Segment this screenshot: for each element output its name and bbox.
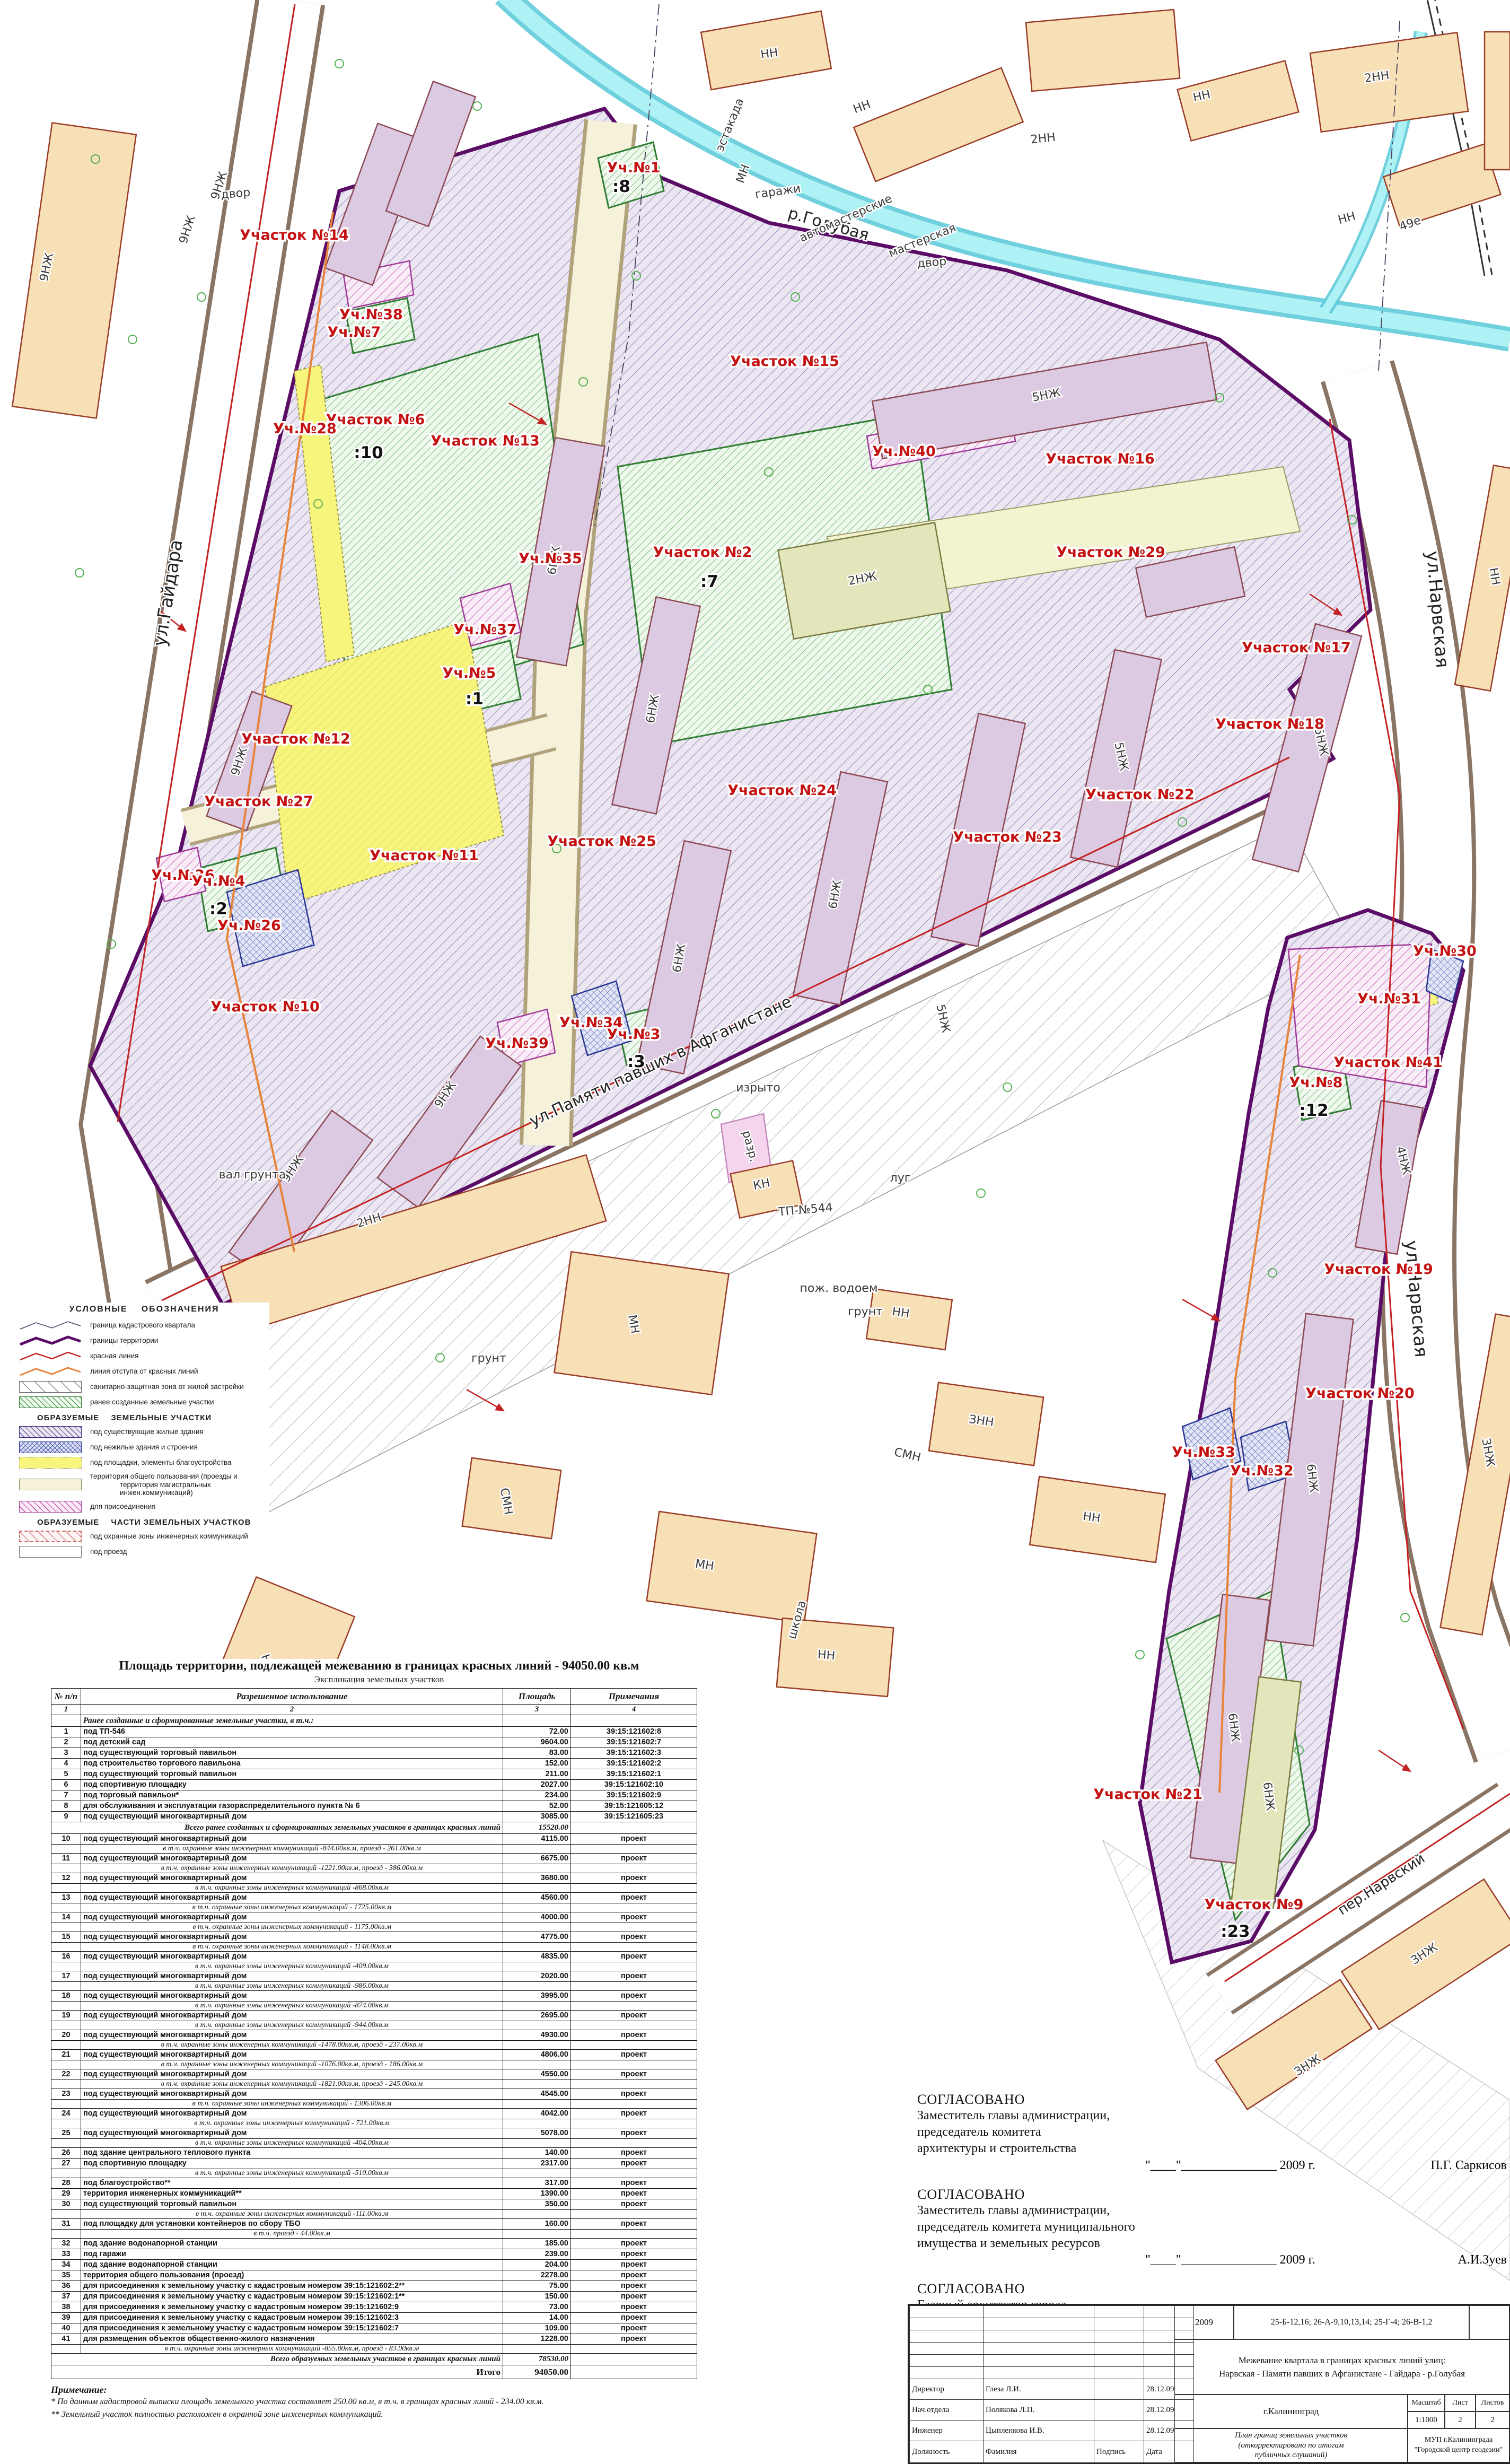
legend-item: территория общего пользования (проезды и… xyxy=(19,1472,269,1497)
table-row: 5под существующий торговый павильон211.0… xyxy=(51,1769,697,1780)
table-header-row: № п/пРазрешенное использованиеПлощадьПри… xyxy=(51,1689,697,1705)
table-row: 27под спортивную площадку2317.00проект xyxy=(51,2159,697,2169)
legend-item-label: ранее созданные земельные участки xyxy=(90,1398,214,1406)
table-row: 30под существующий торговый павильон350.… xyxy=(51,2199,697,2210)
document-name: План границ земельных участков (откоррек… xyxy=(1174,2428,1408,2462)
building-label: НН xyxy=(891,1305,910,1321)
legend-swatch xyxy=(19,1531,82,1542)
legend-title: УСЛОВНЫЕОБОЗНАЧЕНИЯ xyxy=(19,1305,269,1314)
cadastral-ref-label: :7 xyxy=(700,572,718,591)
table-row: 19под существующий многоквартирный дом26… xyxy=(51,2011,697,2021)
approval-name: А.И.Зуев xyxy=(1458,2253,1507,2267)
table-subrow: в т.ч. охранные зоны инженерных коммуник… xyxy=(51,1962,697,1971)
building-label: изрыто xyxy=(736,1081,780,1095)
staff-row: Нач.отделаПолякова Л.П.28.12.09 xyxy=(910,2400,1194,2421)
parcel-label: Участок №16 xyxy=(1046,451,1155,467)
legend-item: под проезд xyxy=(19,1546,269,1558)
approval-date: "____"_______________ 2009 г. xyxy=(1145,2253,1315,2267)
table-subrow: в т.ч. охранные зоны инженерных коммуник… xyxy=(51,2041,697,2050)
building-label: вал грунта xyxy=(219,1168,286,1182)
cadastral-plan-sheet: { "colors":{ "territory_border":"#5a0c66… xyxy=(0,0,1510,2462)
table-subrow: в т.ч. охранные зоны инженерных коммуник… xyxy=(51,2119,697,2128)
approval-heading: СОГЛАСОВАНО xyxy=(917,2092,1507,2108)
approval-signature-row: "____"_______________ 2009 г.П.Г. Саркис… xyxy=(917,2159,1507,2173)
parcel-label: Участок №18 xyxy=(1215,716,1324,732)
table-row: 1под ТП-54672.0039:15:121602:8 xyxy=(51,1727,697,1737)
legend-swatch xyxy=(19,1457,82,1469)
parcel-label: Уч.№28 xyxy=(273,421,337,437)
table-subrow: в т.ч. охранные зоны инженерных коммуник… xyxy=(51,1923,697,1932)
staff-footer-row: ДолжностьФамилияПодписьДата xyxy=(910,2441,1194,2463)
explication-table: № п/пРазрешенное использованиеПлощадьПри… xyxy=(51,1688,697,2379)
staff-row: ДиректорГлеза Л.И.28.12.09 xyxy=(910,2379,1194,2400)
cadastral-ref-label: :8 xyxy=(612,177,630,196)
organization-line2: "Городской центр геодезии" xyxy=(1415,2445,1503,2456)
cadastral-ref-label: :23 xyxy=(1221,1922,1250,1941)
cadastral-ref-label: :10 xyxy=(354,443,383,462)
legend-item: для присоединения xyxy=(19,1501,269,1513)
table-subrow: в т.ч. охранные зоны инженерных коммуник… xyxy=(51,2060,697,2069)
table-total-row: Всего ранее созданных и сформированных з… xyxy=(51,1822,697,1834)
cadastral-ref-label: :3 xyxy=(627,1052,645,1071)
project-title-line2: Нарвская - Памяти павших в Афганистане -… xyxy=(1219,2367,1465,2381)
parcel-label: Участок №29 xyxy=(1056,544,1165,561)
parcel-label: Участок №21 xyxy=(1093,1786,1202,1803)
building-label: МН xyxy=(695,1558,715,1574)
staff-row: ИнженерЦыпленкова И.В.28.12.09 xyxy=(910,2421,1194,2441)
explication-table-block: Площадь территории, подлежащей межеванию… xyxy=(49,1659,709,2421)
table-subtitle: Экспликация земельных участков xyxy=(49,1674,709,1685)
legend-item-label: санитарно-защитная зона от жилой застрой… xyxy=(90,1383,244,1391)
table-row: 4под строительство торгового павильона15… xyxy=(51,1759,697,1769)
table-row: 21под существующий многоквартирный дом48… xyxy=(51,2050,697,2060)
note-line: ** Земельный участок полностью расположе… xyxy=(51,2408,709,2421)
legend-item-label: территория общего пользования (проезды и… xyxy=(90,1472,269,1497)
parcel-label: Участок №17 xyxy=(1242,640,1351,656)
table-row: 13под существующий многоквартирный дом45… xyxy=(51,1893,697,1903)
notes-title: Примечание: xyxy=(51,2384,709,2396)
legend-item: линия отступа от красных линий xyxy=(19,1366,269,1377)
legend-swatch xyxy=(19,1546,82,1558)
sheets-label: Листов xyxy=(1476,2395,1509,2411)
approval-signature-row: "____"_______________ 2009 г.А.И.Зуев xyxy=(917,2253,1507,2267)
table-row: 33под гаражи239.00проект xyxy=(51,2249,697,2260)
table-subrow: в т.ч. охранные зоны инженерных коммуник… xyxy=(51,2100,697,2109)
legend-item: границы территории xyxy=(19,1335,269,1347)
legend-swatch xyxy=(19,1441,82,1453)
legend-group-header: ОБРАЗУЕМЫЕЗЕМЕЛЬНЫЕ УЧАСТКИ xyxy=(37,1413,269,1422)
table-subrow: в т.ч. охранные зоны инженерных коммуник… xyxy=(51,2210,697,2219)
staff-empty-row xyxy=(910,2306,1194,2318)
legend-item-label: под охранные зоны инженерных коммуникаци… xyxy=(90,1532,248,1541)
approval-heading: СОГЛАСОВАНО xyxy=(917,2187,1507,2203)
parcel-label: Участок №14 xyxy=(240,227,349,243)
parcel-label: Участок №23 xyxy=(953,829,1062,845)
staff-empty-row xyxy=(910,2318,1194,2330)
legend-item: красная линия xyxy=(19,1350,269,1362)
parcel-label: Уч.№4 xyxy=(192,873,245,889)
cadastral-ref-label: :1 xyxy=(466,689,484,709)
building-label: НН xyxy=(817,1648,836,1663)
parcel-label: Участок №15 xyxy=(730,353,839,370)
parcel-label: Участок №25 xyxy=(547,833,656,850)
title-block: ДиректорГлеза Л.И.28.12.09Нач.отделаПоля… xyxy=(908,2304,1510,2464)
table-row: 32под здание водонапорной станции185.00п… xyxy=(51,2239,697,2249)
legend-swatch xyxy=(19,1479,82,1490)
parcel-label: Участок №41 xyxy=(1333,1054,1443,1071)
table-row: 11под существующий многоквартирный дом66… xyxy=(51,1854,697,1864)
table-subrow: в т.ч. охранные зоны инженерных коммуник… xyxy=(51,2345,697,2354)
approval-name: П.Г. Саркисов xyxy=(1430,2159,1507,2173)
building-label: грунт xyxy=(471,1352,506,1365)
sheet-label: Лист xyxy=(1445,2395,1476,2411)
legend-item-label: под существующие жилые здания xyxy=(90,1428,204,1436)
legend-item-label: красная линия xyxy=(90,1352,138,1360)
approval-line: архитектуры и строительства xyxy=(917,2140,1507,2157)
legend-swatch xyxy=(19,1381,82,1393)
building-label: пож. водоем xyxy=(800,1282,878,1295)
document-name-line3: публичных слушаний) xyxy=(1255,2450,1327,2460)
table-row: 29территория инженерных коммуникаций**13… xyxy=(51,2189,697,2199)
legend-item-label: под нежилые здания и строения xyxy=(90,1443,198,1452)
parcel-label: Участок №13 xyxy=(431,433,540,449)
legend-item-label: граница кадастрового квартала xyxy=(90,1321,195,1330)
legend-swatch xyxy=(19,1426,82,1438)
parcel-label: Уч.№3 xyxy=(607,1026,661,1043)
legend-swatch xyxy=(19,1350,82,1362)
cadastral-ref-label: :2 xyxy=(209,899,227,919)
legend-item: под существующие жилые здания xyxy=(19,1426,269,1438)
legend-swatch xyxy=(19,1501,82,1513)
table-row: 2под детский сад9604.0039:15:121602:7 xyxy=(51,1737,697,1748)
sheets-value: 2 xyxy=(1476,2411,1509,2428)
table-subrow: в т.ч. охранные зоны инженерных коммуник… xyxy=(51,2002,697,2011)
legend-item: под охранные зоны инженерных коммуникаци… xyxy=(19,1531,269,1542)
table-section-row: Ранее созданные и сформированные земельн… xyxy=(51,1715,697,1727)
parcel-label: Участок №19 xyxy=(1324,1261,1433,1278)
parcel-label: Уч.№26 xyxy=(217,918,281,934)
table-row: 35территория общего пользования (проезд)… xyxy=(51,2270,697,2281)
approval-line: председатель комитета муниципального xyxy=(917,2219,1507,2235)
title-block-codes: 25-Б-12,16; 26-А-9,10,13,14; 25-Г-4; 26-… xyxy=(1234,2305,1469,2339)
legend-item-label: под проезд xyxy=(90,1548,127,1556)
parcel-label: Участок №22 xyxy=(1085,787,1195,803)
table-row: 17под существующий многоквартирный дом20… xyxy=(51,1971,697,1982)
table-row: 31под площадку для установки контейнеров… xyxy=(51,2219,697,2230)
table-row: 34под здание водонапорной станции204.00п… xyxy=(51,2260,697,2270)
legend-swatch xyxy=(19,1320,82,1331)
project-title-line1: Межевание квартала в границах красных ли… xyxy=(1239,2354,1446,2367)
table-row: 40для присоединения к земельному участку… xyxy=(51,2323,697,2334)
parcel-label: Участок №20 xyxy=(1305,1385,1415,1402)
table-subrow: в т.ч. охранные зоны инженерных коммуник… xyxy=(51,1884,697,1893)
table-row: 23под существующий многоквартирный дом45… xyxy=(51,2089,697,2100)
table-row: 39для присоединения к земельному участку… xyxy=(51,2313,697,2323)
legend-item: под площадки, элементы благоустройства xyxy=(19,1457,269,1469)
table-row: 37для присоединения к земельному участку… xyxy=(51,2292,697,2302)
staff-empty-row xyxy=(910,2343,1194,2355)
parcel-label: Уч.№7 xyxy=(328,324,381,340)
table-row: 12под существующий многоквартирный дом36… xyxy=(51,1873,697,1884)
staff-empty-row xyxy=(910,2330,1194,2343)
sheet-value: 2 xyxy=(1445,2411,1476,2428)
approval-line: Заместитель главы администрации, xyxy=(917,2108,1507,2124)
scale-label: Масштаб xyxy=(1408,2395,1445,2411)
legend-item: санитарно-защитная зона от жилой застрой… xyxy=(19,1381,269,1393)
table-row: 26под здание центрального теплового пунк… xyxy=(51,2148,697,2159)
parcel-label: Участок №27 xyxy=(204,793,313,810)
legend: УСЛОВНЫЕОБОЗНАЧЕНИЯ граница кадастрового… xyxy=(19,1303,269,1566)
note-line: * По данным кадастровой выписки площадь … xyxy=(51,2396,709,2408)
table-row: 20под существующий многоквартирный дом49… xyxy=(51,2030,697,2041)
parcel-label: Участок №11 xyxy=(370,847,479,864)
table-subrow: в т.ч. охранные зоны инженерных коммуник… xyxy=(51,2139,697,2148)
parcel-label: Участок №10 xyxy=(210,999,320,1015)
scale-value: 1:1000 xyxy=(1408,2411,1445,2428)
approval-date: "____"_______________ 2009 г. xyxy=(1145,2159,1315,2173)
parcel-label: Участок №9 xyxy=(1205,1897,1304,1913)
parcel-label: Участок №12 xyxy=(241,731,350,747)
approval-line: имущества и земельных ресурсов xyxy=(917,2235,1507,2252)
organization-line1: МУП г.Калининграда xyxy=(1425,2435,1493,2445)
table-subrow: в т.ч. охранные зоны инженерных коммуник… xyxy=(51,2169,697,2178)
approval-line: председатель комитета xyxy=(917,2124,1507,2140)
parcel-label: Уч.№1 xyxy=(607,160,661,176)
building-label: двор xyxy=(917,255,947,271)
table-subrow: в т.ч. охранные зоны инженерных коммуник… xyxy=(51,2080,697,2089)
staff-table: ДиректорГлеза Л.И.28.12.09Нач.отделаПоля… xyxy=(909,2305,1194,2463)
parcel-label: Уч.№39 xyxy=(485,1035,549,1052)
table-total-row: Всего образуемых земельных участков в гр… xyxy=(51,2354,697,2365)
parcel-label: Уч.№32 xyxy=(1230,1463,1294,1479)
table-subrow: в т.ч. охранные зоны инженерных коммуник… xyxy=(51,1903,697,1912)
parcel-label: Уч.№40 xyxy=(872,443,936,460)
table-row: 36для присоединения к земельному участку… xyxy=(51,2281,697,2292)
table-total-row: Итого94050.00 xyxy=(51,2365,697,2379)
table-row: 14под существующий многоквартирный дом40… xyxy=(51,1912,697,1923)
parcel-label: Уч.№37 xyxy=(453,622,517,638)
cadastral-ref-label: :12 xyxy=(1299,1101,1329,1120)
table-notes: Примечание: * По данным кадастровой выпи… xyxy=(51,2384,709,2421)
parcel-label: Уч.№38 xyxy=(339,307,403,323)
table-row: 24под существующий многоквартирный дом40… xyxy=(51,2109,697,2119)
approval-block: СОГЛАСОВАНОЗаместитель главы администрац… xyxy=(917,2092,1507,2173)
table-subrow: в т.ч. охранные зоны инженерных коммуник… xyxy=(51,1982,697,1991)
building-label: НН xyxy=(1082,1510,1101,1525)
legend-items: граница кадастрового квартала границы те… xyxy=(19,1320,269,1558)
table-colnum-row: 1234 xyxy=(51,1705,697,1715)
legend-item: под нежилые здания и строения xyxy=(19,1441,269,1453)
document-name-line1: План границ земельных участков xyxy=(1235,2431,1347,2441)
table-subrow: в т.ч. охранные зоны инженерных коммуник… xyxy=(51,2021,697,2030)
staff-empty-row xyxy=(910,2355,1194,2367)
approval-block: СОГЛАСОВАНОЗаместитель главы администрац… xyxy=(917,2187,1507,2268)
table-row: 3под существующий торговый павильон83.00… xyxy=(51,1748,697,1759)
table-row: 18под существующий многоквартирный дом39… xyxy=(51,1991,697,2002)
table-subrow: в т.ч. охранные зоны инженерных коммуник… xyxy=(51,1943,697,1952)
legend-item: граница кадастрового квартала xyxy=(19,1320,269,1331)
building-label: НН xyxy=(760,46,779,62)
parcel-label: Участок №6 xyxy=(326,412,425,428)
building-label: грунт xyxy=(848,1305,883,1318)
table-row: 41для размещения объектов общественно-жи… xyxy=(51,2334,697,2345)
document-name-line2: (откорректировано по итогам xyxy=(1238,2441,1344,2451)
legend-swatch xyxy=(19,1335,82,1347)
legend-swatch xyxy=(19,1366,82,1377)
table-row: 25под существующий многоквартирный дом50… xyxy=(51,2128,697,2139)
legend-item-label: под площадки, элементы благоустройства xyxy=(90,1458,231,1467)
table-row: 6под спортивную площадку2027.0039:15:121… xyxy=(51,1780,697,1790)
table-row: 7под торговый павильон*234.0039:15:12160… xyxy=(51,1790,697,1801)
table-row: 15под существующий многоквартирный дом47… xyxy=(51,1932,697,1943)
building-label: двор xyxy=(221,186,251,202)
table-row: 10под существующий многоквартирный дом41… xyxy=(51,1834,697,1845)
table-row: 16под существующий многоквартирный дом48… xyxy=(51,1952,697,1962)
organization: МУП г.Калининграда "Городской центр геод… xyxy=(1408,2428,1509,2462)
title-block-city: г.Калининград xyxy=(1174,2395,1408,2428)
building-label: 2НН xyxy=(1030,131,1056,147)
building-label: луг xyxy=(890,1172,911,1185)
legend-item-label: линия отступа от красных линий xyxy=(90,1367,198,1376)
legend-item-label: для присоединения xyxy=(90,1502,155,1511)
parcel-label: Уч.№5 xyxy=(443,665,496,681)
table-row: 9под существующий многоквартирный дом308… xyxy=(51,1812,697,1822)
title-block-spare xyxy=(1469,2305,1509,2339)
title-block-project-title: Межевание квартала в границах красных ли… xyxy=(1174,2339,1509,2395)
parcel-label: Уч.№30 xyxy=(1413,943,1477,959)
table-subrow: в т.ч. охранные зоны инженерных коммуник… xyxy=(51,1864,697,1873)
table-row: 8для обслуживания и эксплуатации газорас… xyxy=(51,1801,697,1812)
parcel-label: Участок №2 xyxy=(653,544,752,561)
parcel-label: Уч.№33 xyxy=(1172,1444,1235,1461)
legend-swatch xyxy=(19,1396,82,1408)
title-block-year: 2009 xyxy=(1174,2305,1234,2339)
parcel-label: Уч.№35 xyxy=(519,551,582,567)
table-title: Площадь территории, подлежащей межеванию… xyxy=(49,1659,709,1673)
table-subrow: в т.ч. охранные зоны инженерных коммуник… xyxy=(51,1845,697,1854)
legend-group-header: ОБРАЗУЕМЫЕЧАСТИ ЗЕМЕЛЬНЫХ УЧАСТКОВ xyxy=(37,1518,269,1527)
parcel-label: Участок №24 xyxy=(727,782,837,799)
approval-heading: СОГЛАСОВАНО xyxy=(917,2281,1507,2297)
table-subrow: в т.ч. проезд - 44.00кв.м xyxy=(51,2230,697,2239)
staff-empty-row xyxy=(910,2367,1194,2379)
legend-item-label: границы территории xyxy=(90,1336,158,1345)
table-row: 22под существующий многоквартирный дом45… xyxy=(51,2069,697,2080)
legend-item: ранее созданные земельные участки xyxy=(19,1396,269,1408)
table-row: 38для присоединения к земельному участку… xyxy=(51,2302,697,2313)
table-row: 28под благоустройство**317.00проект xyxy=(51,2178,697,2189)
approval-line: Заместитель главы администрации, xyxy=(917,2203,1507,2219)
parcel-label: Уч.№8 xyxy=(1289,1074,1343,1091)
parcel-label: Уч.№31 xyxy=(1357,991,1421,1007)
